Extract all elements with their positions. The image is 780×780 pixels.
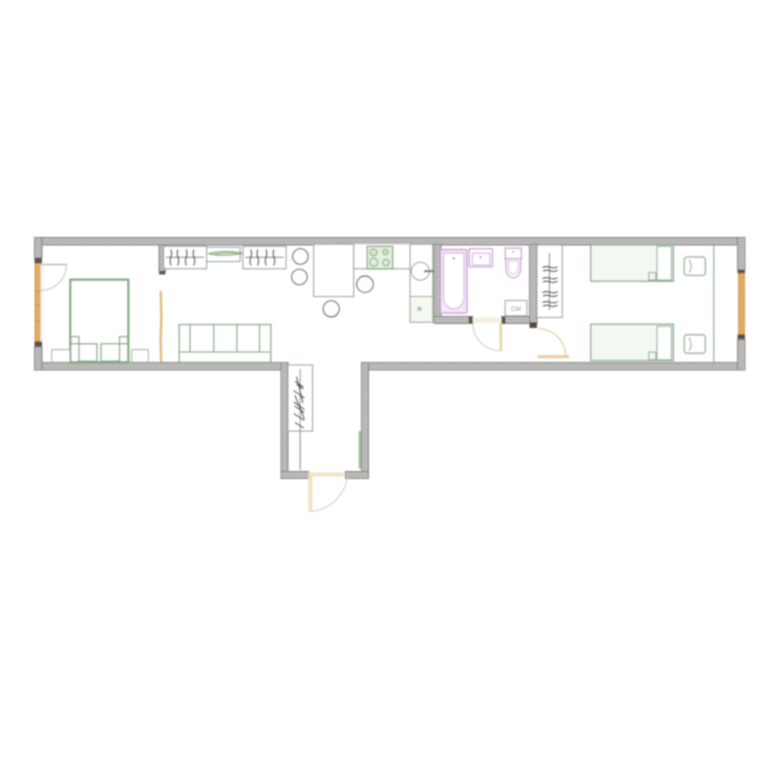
svg-text:СМ: СМ	[511, 306, 521, 313]
